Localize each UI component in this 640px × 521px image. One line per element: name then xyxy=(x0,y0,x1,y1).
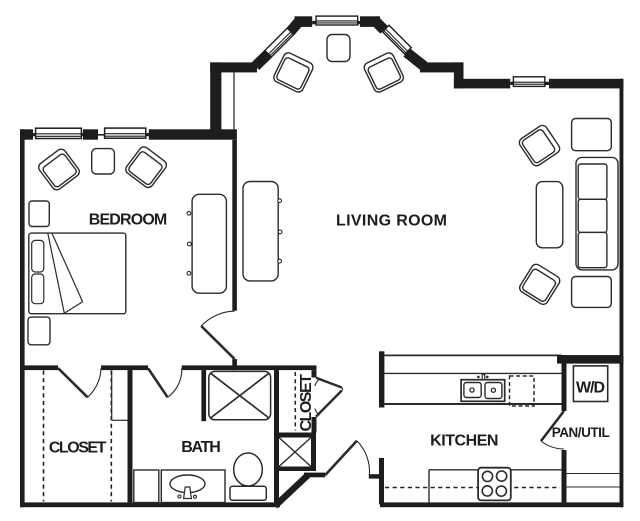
svg-text:CLOSET: CLOSET xyxy=(298,374,315,432)
svg-text:BATH: BATH xyxy=(181,439,221,456)
svg-text:PAN/UTIL: PAN/UTIL xyxy=(552,425,610,440)
svg-text:W/D: W/D xyxy=(576,380,605,397)
svg-text:LIVING ROOM: LIVING ROOM xyxy=(336,213,447,230)
svg-text:CLOSET: CLOSET xyxy=(49,440,107,457)
svg-text:BEDROOM: BEDROOM xyxy=(89,212,168,229)
svg-text:KITCHEN: KITCHEN xyxy=(430,432,498,449)
